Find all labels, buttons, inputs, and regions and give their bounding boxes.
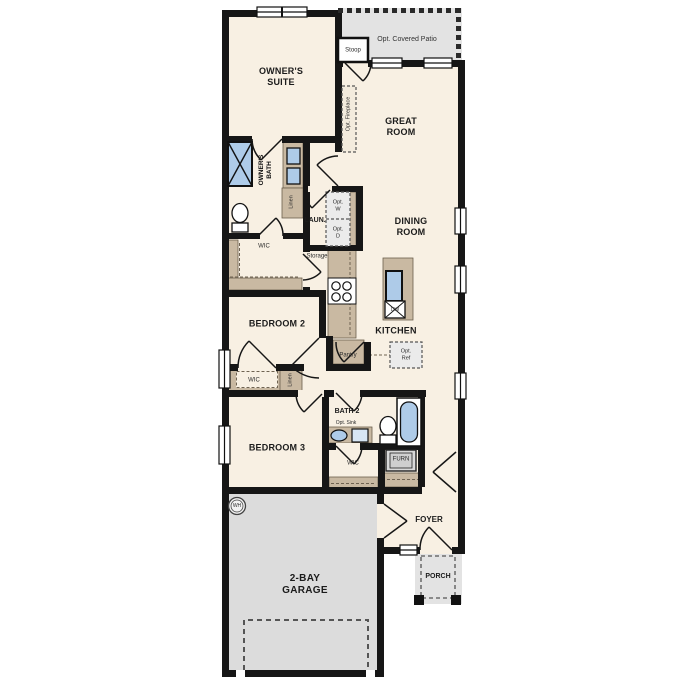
furnace [386,450,416,471]
window-left-2 [219,426,230,464]
water-heater [229,498,246,515]
window-right-3 [455,373,466,399]
bath2-tub [397,398,421,446]
stoop-pad [338,38,368,62]
porch-post-right [451,595,461,605]
garage-door-jamb-left [236,670,245,677]
opening-owners-bath [252,136,282,143]
porch-post-left [414,595,424,605]
opening-front-door [420,547,452,554]
opening-wic2 [238,364,276,371]
range-cooktop [328,278,356,304]
window-foyer [400,545,417,555]
floor-plan: OWNER'S SUITE Stoop Opt. Covered Patio G… [0,0,687,687]
wall-furn-west [378,450,385,494]
island-sink [386,271,402,301]
dishwasher [385,301,405,318]
window-right-2 [455,266,466,293]
wall-bed3-right [322,390,329,492]
garage-door-jamb-right [366,670,375,677]
floor-plan-drawing [0,0,687,687]
linen1-closet [282,188,303,218]
wall-left [222,10,229,677]
wall-right [458,60,465,554]
opening-garage-door [377,504,384,538]
wic2-closet-interior [236,371,278,388]
wall-pantry-right [364,342,371,371]
owners-sink-2 [287,168,300,184]
fireplace-opt [342,86,356,152]
window-suite-top [257,7,307,17]
wall-greatroom-left [335,67,342,140]
window-right-1 [455,208,466,234]
wic1-shelf-bottom [228,278,302,290]
wall-wic1-a [222,233,260,239]
washer-dryer-opt [326,192,350,246]
owners-sink-1 [287,148,300,164]
window-greatroom-2 [424,58,452,68]
wall-bed2-top [222,290,326,297]
owners-toilet [232,204,248,233]
bath2-sink [331,430,347,441]
bath2-opt-sink [352,429,368,442]
wall-wic1-b [283,233,303,239]
window-greatroom-1 [372,58,402,68]
refrigerator-opt [390,342,422,368]
owners-shower [228,142,252,186]
wall-bed2-right [319,290,326,338]
wall-bath-east [303,136,310,190]
garage-floor [228,493,377,676]
bath2-toilet [380,417,396,445]
opening-hall [335,152,342,186]
wall-garage-bottom [222,670,382,677]
window-left-1 [219,350,230,388]
wall-laundry-right [356,186,363,250]
